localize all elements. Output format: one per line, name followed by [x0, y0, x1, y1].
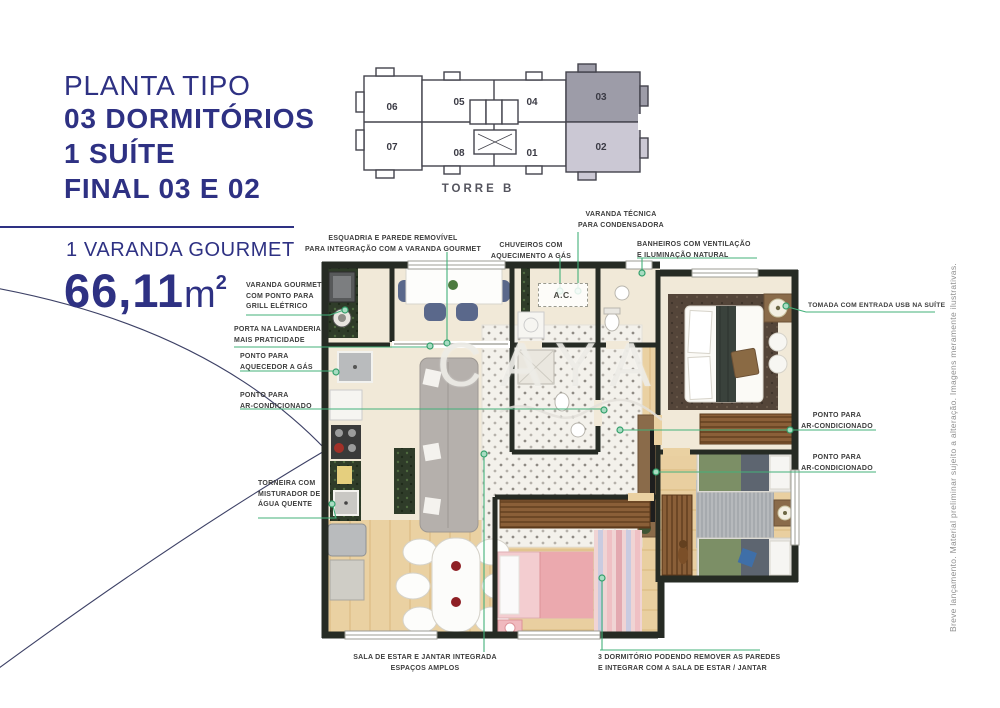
- annotation-chuveiros: CHUVEIROS COM AQUECIMENTO A GÁS: [478, 241, 584, 262]
- dog: [678, 546, 688, 564]
- tower-unit-04: 04: [517, 97, 547, 108]
- watermark: CAYA: [408, 330, 698, 401]
- annotation-ar-condicionado-suite: PONTO PARA AR-CONDICIONADO: [793, 411, 881, 432]
- annotation-varanda-tecnica: VARANDA TÉCNICA PARA CONDENSADORA: [566, 210, 676, 231]
- tower-unit-02: 02: [586, 142, 616, 153]
- page-title: PLANTA TIPO: [64, 72, 251, 100]
- annotation-torneira: TORNEIRA COM MISTURADOR DE ÁGUA QUENTE: [258, 479, 350, 511]
- annotation-banheiros: BANHEIROS COM VENTILAÇÃO E ILUMINAÇÃO NA…: [637, 240, 797, 261]
- annotation-varanda-gourmet: VARANDA GOURMET COM PONTO PARA GRILL ELÉ…: [246, 281, 338, 313]
- annotation-aquecedor: PONTO PARA AQUECEDOR A GÁS: [240, 352, 344, 373]
- title-dormitorios: 03 DORMITÓRIOS: [64, 105, 315, 133]
- subtitle-varanda: 1 VARANDA GOURMET: [66, 239, 295, 262]
- area-unit: m: [184, 274, 216, 316]
- tower-unit-06: 06: [377, 102, 407, 113]
- tower-unit-01: 01: [517, 148, 547, 159]
- tower-unit-03: 03: [586, 92, 616, 103]
- title-suite: 1 SUÍTE: [64, 140, 175, 168]
- floor-plan-sheet: PLANTA TIPO 03 DORMITÓRIOS 1 SUÍTE FINAL…: [0, 0, 1000, 708]
- legal-disclaimer: Breve lançamento. Material preliminar su…: [948, 112, 958, 632]
- tower-unit-07: 07: [377, 142, 407, 153]
- tower-left-wing: [356, 68, 422, 178]
- title-final: FINAL 03 E 02: [64, 175, 261, 203]
- bed-b: [697, 538, 792, 578]
- annotation-esquadria: ESQUADRIA E PAREDE REMOVÍVEL PARA INTEGR…: [278, 234, 508, 255]
- tower-unit-08: 08: [444, 148, 474, 159]
- tower-unit-05: 05: [444, 97, 474, 108]
- area-number: 66,11: [64, 264, 184, 317]
- annotation-porta-lavanderia: PORTA NA LAVANDERIA MAIS PRATICIDADE: [234, 325, 350, 346]
- bedroom-3: [498, 500, 650, 636]
- area-value: 66,11m2: [64, 263, 227, 318]
- floor-plan-drawing: [322, 261, 799, 639]
- ac-area-label: A.C.: [538, 283, 588, 307]
- annotation-dormitorio3: 3 DORMITÓRIO PODENDO REMOVER AS PAREDES …: [598, 653, 788, 674]
- annotation-ar-condicionado-sala: PONTO PARA AR-CONDICIONADO: [240, 391, 344, 412]
- area-exponent: 2: [216, 272, 227, 294]
- title-divider: [0, 226, 294, 228]
- annotation-tomada-usb: TOMADA COM ENTRADA USB NA SUÍTE: [808, 301, 958, 311]
- tower-highlight-wing: [566, 64, 648, 180]
- annotation-sala-integrada: SALA DE ESTAR E JANTAR INTEGRADA ESPAÇOS…: [330, 653, 520, 674]
- annotation-ar-condicionado-dorm: PONTO PARA AR-CONDICIONADO: [793, 453, 881, 474]
- tower-key-plan: [356, 64, 648, 180]
- tower-label: TORRE B: [418, 183, 538, 195]
